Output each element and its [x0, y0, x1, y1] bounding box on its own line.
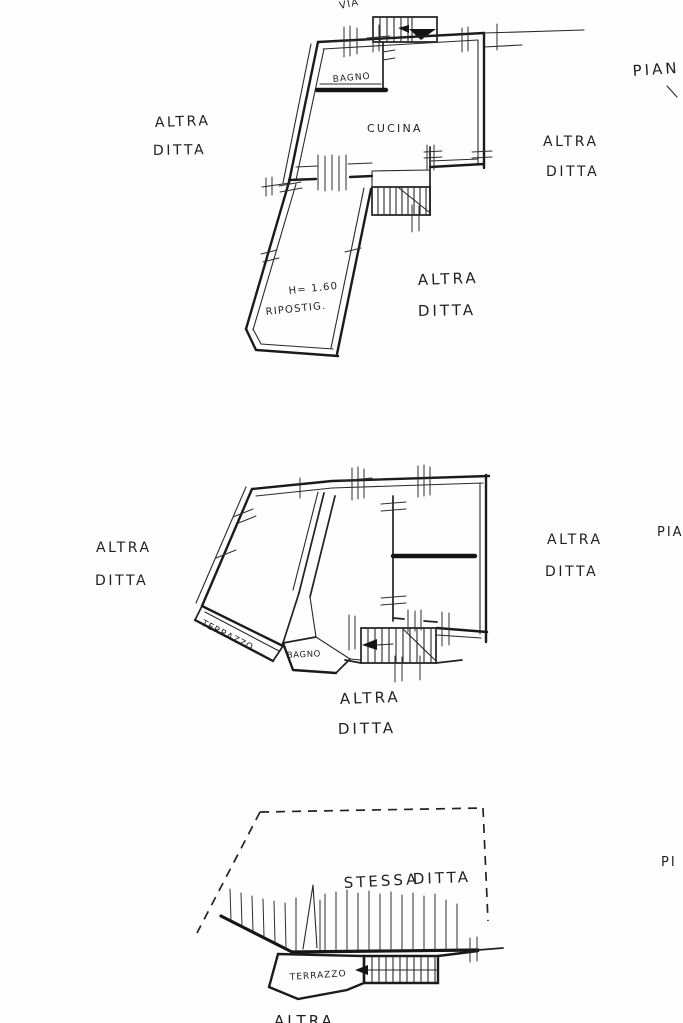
plan2-altra-left: ALTRA	[96, 540, 152, 556]
plan1-staircase-bottom	[372, 170, 430, 215]
plan2-ditta-right: DITTA	[545, 564, 598, 580]
plan2-bagno-label: BAGNO	[287, 649, 322, 661]
stair-direction-marker	[409, 29, 436, 40]
plan2-ditta-bottom: DITTA	[338, 719, 396, 738]
floorplan-drawing: VIA PIAN BAGNO CUCINA H= 1.60 RIPOSTIG. …	[0, 0, 683, 1023]
plan2-altra-bottom: ALTRA	[340, 688, 401, 708]
plan1-cucina-label: CUCINA	[367, 122, 423, 135]
plan1-altra-right: ALTRA	[543, 134, 599, 150]
plan2-altra-right: ALTRA	[547, 532, 603, 548]
stair-arrow-head	[398, 25, 409, 33]
plan1-ripostiglio-walls	[246, 182, 371, 356]
scanned-floorplan-page: VIA PIAN BAGNO CUCINA H= 1.60 RIPOSTIG. …	[0, 0, 683, 1023]
plan1-ditta-mid: DITTA	[418, 301, 476, 320]
pian-partial-stroke	[667, 86, 677, 97]
plan3-staircase	[355, 951, 478, 983]
plan3-terrazzo-label: TERRAZZO	[289, 969, 347, 983]
plan-2: TERRAZZO BAGNO ALTRA DITTA ALTRA DITTA P…	[95, 465, 683, 738]
stair-arrow-head	[362, 639, 377, 650]
plan3-altra-clipped: ALTRA	[274, 1012, 335, 1023]
pian-label-clipped: PIAN	[632, 59, 680, 80]
stair-arrow-head	[355, 965, 368, 975]
pia-label-clipped: PIA	[657, 525, 683, 540]
plan3-hatching	[230, 889, 457, 950]
plan1-ditta-right: DITTA	[546, 164, 599, 180]
plan2-ditta-left: DITTA	[95, 573, 148, 589]
plan1-bagno-label: BAGNO	[332, 72, 371, 85]
plan-1: VIA PIAN BAGNO CUCINA H= 1.60 RIPOSTIG. …	[153, 0, 680, 356]
plan2-walls	[196, 475, 489, 643]
pi-label-clipped: PI	[661, 855, 677, 870]
plan1-height-note: H= 1.60	[288, 281, 339, 297]
plan3-ditta-label: DITTA	[413, 868, 472, 888]
plan1-altra-mid: ALTRA	[418, 269, 479, 289]
plan1-ripostiglio-label: RIPOSTIG.	[265, 301, 327, 318]
street-label: VIA	[338, 0, 360, 12]
plan1-ditta-left: DITTA	[153, 142, 207, 159]
plan-3: STESSA DITTA TERRAZZO ALTRA PI	[197, 808, 677, 1023]
plan1-altra-left: ALTRA	[155, 113, 211, 131]
plan2-staircase	[345, 628, 462, 663]
plan2-terrazzo-walls	[195, 606, 283, 661]
plan3-stessa-label: STESSA	[343, 870, 420, 892]
